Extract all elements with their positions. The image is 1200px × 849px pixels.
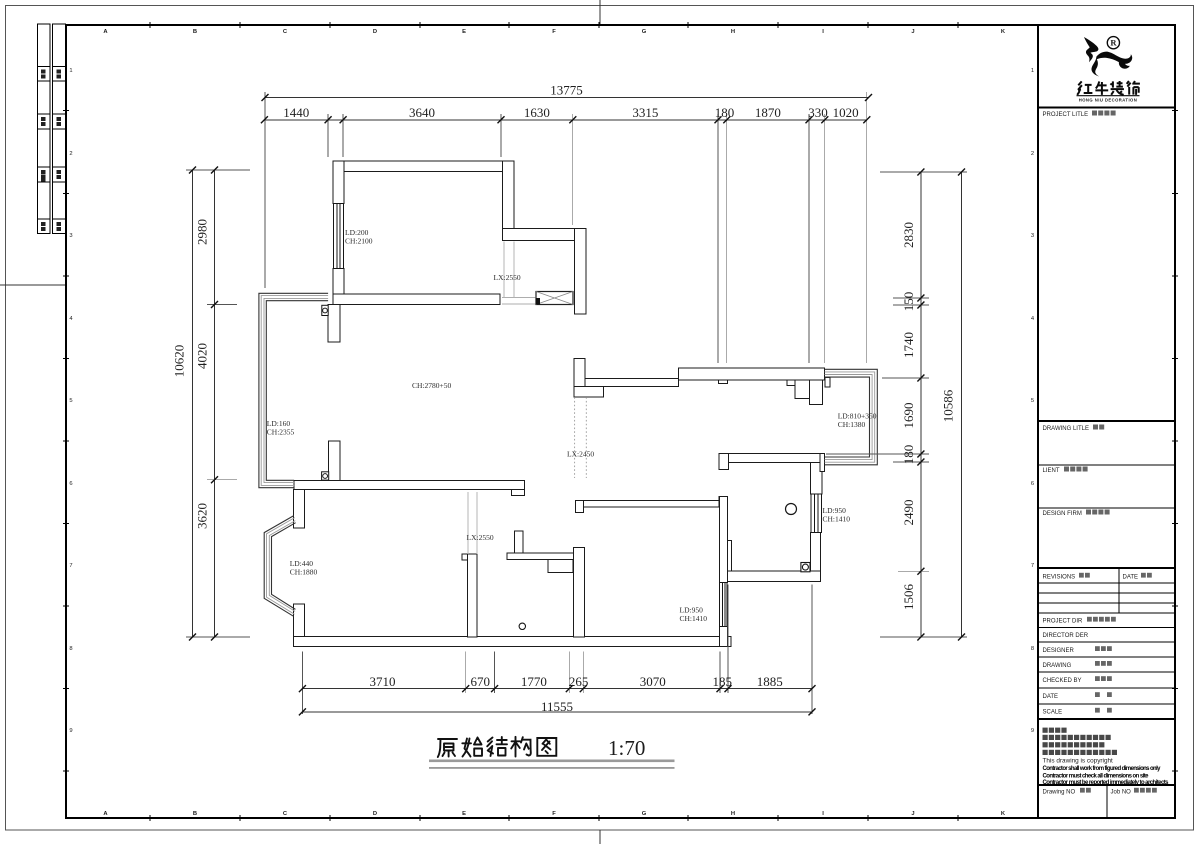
svg-text:1885: 1885 (757, 674, 783, 689)
svg-text:DESIGNER: DESIGNER (1043, 648, 1075, 654)
svg-text:Drawing NO: Drawing NO (1043, 790, 1076, 796)
svg-text:330: 330 (808, 105, 828, 120)
svg-text:Contractor must be reported im: Contractor must be reported immediately … (1043, 780, 1170, 786)
svg-text:6: 6 (69, 481, 72, 487)
svg-text:3315: 3315 (632, 105, 658, 120)
svg-text:DRAWING: DRAWING (1043, 663, 1072, 669)
svg-text:REVISIONS: REVISIONS (1043, 575, 1076, 581)
svg-text:1440: 1440 (283, 105, 309, 120)
svg-text:3710: 3710 (370, 674, 396, 689)
svg-text:13775: 13775 (550, 83, 583, 98)
svg-text:DIRECTOR DER: DIRECTOR DER (1043, 633, 1089, 639)
svg-text:265: 265 (569, 674, 589, 689)
svg-text:1: 1 (69, 68, 72, 74)
svg-text:R: R (1110, 38, 1117, 48)
svg-text:SCALE: SCALE (1043, 710, 1063, 716)
svg-text:F: F (552, 29, 556, 35)
svg-text:CH:2100: CH:2100 (345, 237, 373, 246)
svg-text:7: 7 (1031, 563, 1034, 569)
svg-text:PROJECT LITLE: PROJECT LITLE (1043, 112, 1089, 118)
svg-text:This drawing is copyright: This drawing is copyright (1043, 758, 1114, 765)
svg-text:1:70: 1:70 (608, 736, 645, 760)
svg-text:2980: 2980 (195, 219, 210, 245)
svg-text:LIENT: LIENT (1043, 468, 1060, 474)
svg-text:CHECKED BY: CHECKED BY (1043, 678, 1082, 684)
svg-text:3070: 3070 (640, 674, 666, 689)
svg-text:2830: 2830 (901, 222, 916, 248)
svg-text:1020: 1020 (833, 105, 859, 120)
svg-text:CH:1410: CH:1410 (823, 515, 851, 524)
svg-text:3620: 3620 (195, 503, 210, 529)
svg-text:9: 9 (1031, 728, 1034, 734)
svg-text:CH:1410: CH:1410 (680, 614, 708, 623)
svg-text:J: J (911, 29, 914, 35)
svg-text:10620: 10620 (172, 345, 187, 378)
svg-text:670: 670 (471, 674, 491, 689)
svg-text:G: G (642, 811, 647, 817)
svg-text:7: 7 (69, 563, 72, 569)
svg-text:1506: 1506 (901, 584, 916, 611)
svg-text:8: 8 (1031, 646, 1034, 652)
svg-text:180: 180 (715, 105, 735, 120)
svg-text:D: D (373, 29, 377, 35)
svg-text:180: 180 (901, 445, 916, 465)
svg-text:F: F (552, 811, 556, 817)
svg-text:2: 2 (69, 151, 72, 157)
svg-text:4020: 4020 (195, 343, 210, 369)
svg-text:DRAWING LITLE: DRAWING LITLE (1043, 426, 1089, 432)
svg-text:2: 2 (1031, 151, 1034, 157)
svg-text:2490: 2490 (901, 500, 916, 526)
svg-text:150: 150 (901, 292, 916, 312)
svg-text:8: 8 (69, 646, 72, 652)
svg-text:HONG NIU DECORATION: HONG NIU DECORATION (1079, 97, 1138, 102)
svg-text:B: B (193, 29, 197, 35)
svg-text:CH:2355: CH:2355 (267, 428, 295, 437)
svg-text:E: E (462, 29, 466, 35)
svg-text:5: 5 (69, 398, 72, 404)
svg-text:PROJECT DIR: PROJECT DIR (1043, 619, 1084, 625)
svg-text:3640: 3640 (409, 105, 435, 120)
svg-text:1770: 1770 (521, 674, 547, 689)
svg-text:H: H (731, 29, 735, 35)
svg-text:1690: 1690 (901, 403, 916, 429)
svg-text:9: 9 (69, 728, 72, 734)
svg-text:6: 6 (1031, 481, 1034, 487)
svg-text:3: 3 (1031, 233, 1034, 239)
svg-text:CH:1380: CH:1380 (838, 420, 866, 429)
svg-text:Job NO: Job NO (1111, 790, 1132, 796)
svg-text:DATE: DATE (1043, 694, 1059, 700)
svg-text:LX:2550: LX:2550 (494, 273, 521, 282)
svg-text:1630: 1630 (524, 105, 550, 120)
svg-text:1740: 1740 (901, 332, 916, 358)
svg-text:DESIGN FIRM: DESIGN FIRM (1043, 511, 1082, 517)
svg-text:185: 185 (712, 674, 732, 689)
svg-text:1: 1 (1031, 68, 1034, 74)
svg-text:11555: 11555 (541, 699, 573, 714)
svg-text:3: 3 (69, 233, 72, 239)
svg-text:Contractor shall work from fig: Contractor shall work from figured dimen… (1043, 766, 1162, 772)
svg-text:10586: 10586 (941, 389, 956, 422)
svg-text:LX:2550: LX:2550 (467, 533, 494, 542)
svg-text:G: G (642, 29, 647, 35)
svg-text:1870: 1870 (755, 105, 781, 120)
svg-text:B: B (193, 811, 197, 817)
svg-text:E: E (462, 811, 466, 817)
svg-text:CH:2780+50: CH:2780+50 (412, 381, 451, 390)
svg-text:J: J (911, 811, 914, 817)
svg-text:D: D (373, 811, 377, 817)
svg-text:CH:1880: CH:1880 (290, 568, 318, 577)
svg-text:DATE: DATE (1123, 575, 1139, 581)
svg-text:5: 5 (1031, 398, 1034, 404)
svg-text:H: H (731, 811, 735, 817)
svg-text:LX:2450: LX:2450 (567, 450, 594, 459)
svg-text:Contractor must check all dime: Contractor must check all dimensions on … (1043, 774, 1150, 780)
